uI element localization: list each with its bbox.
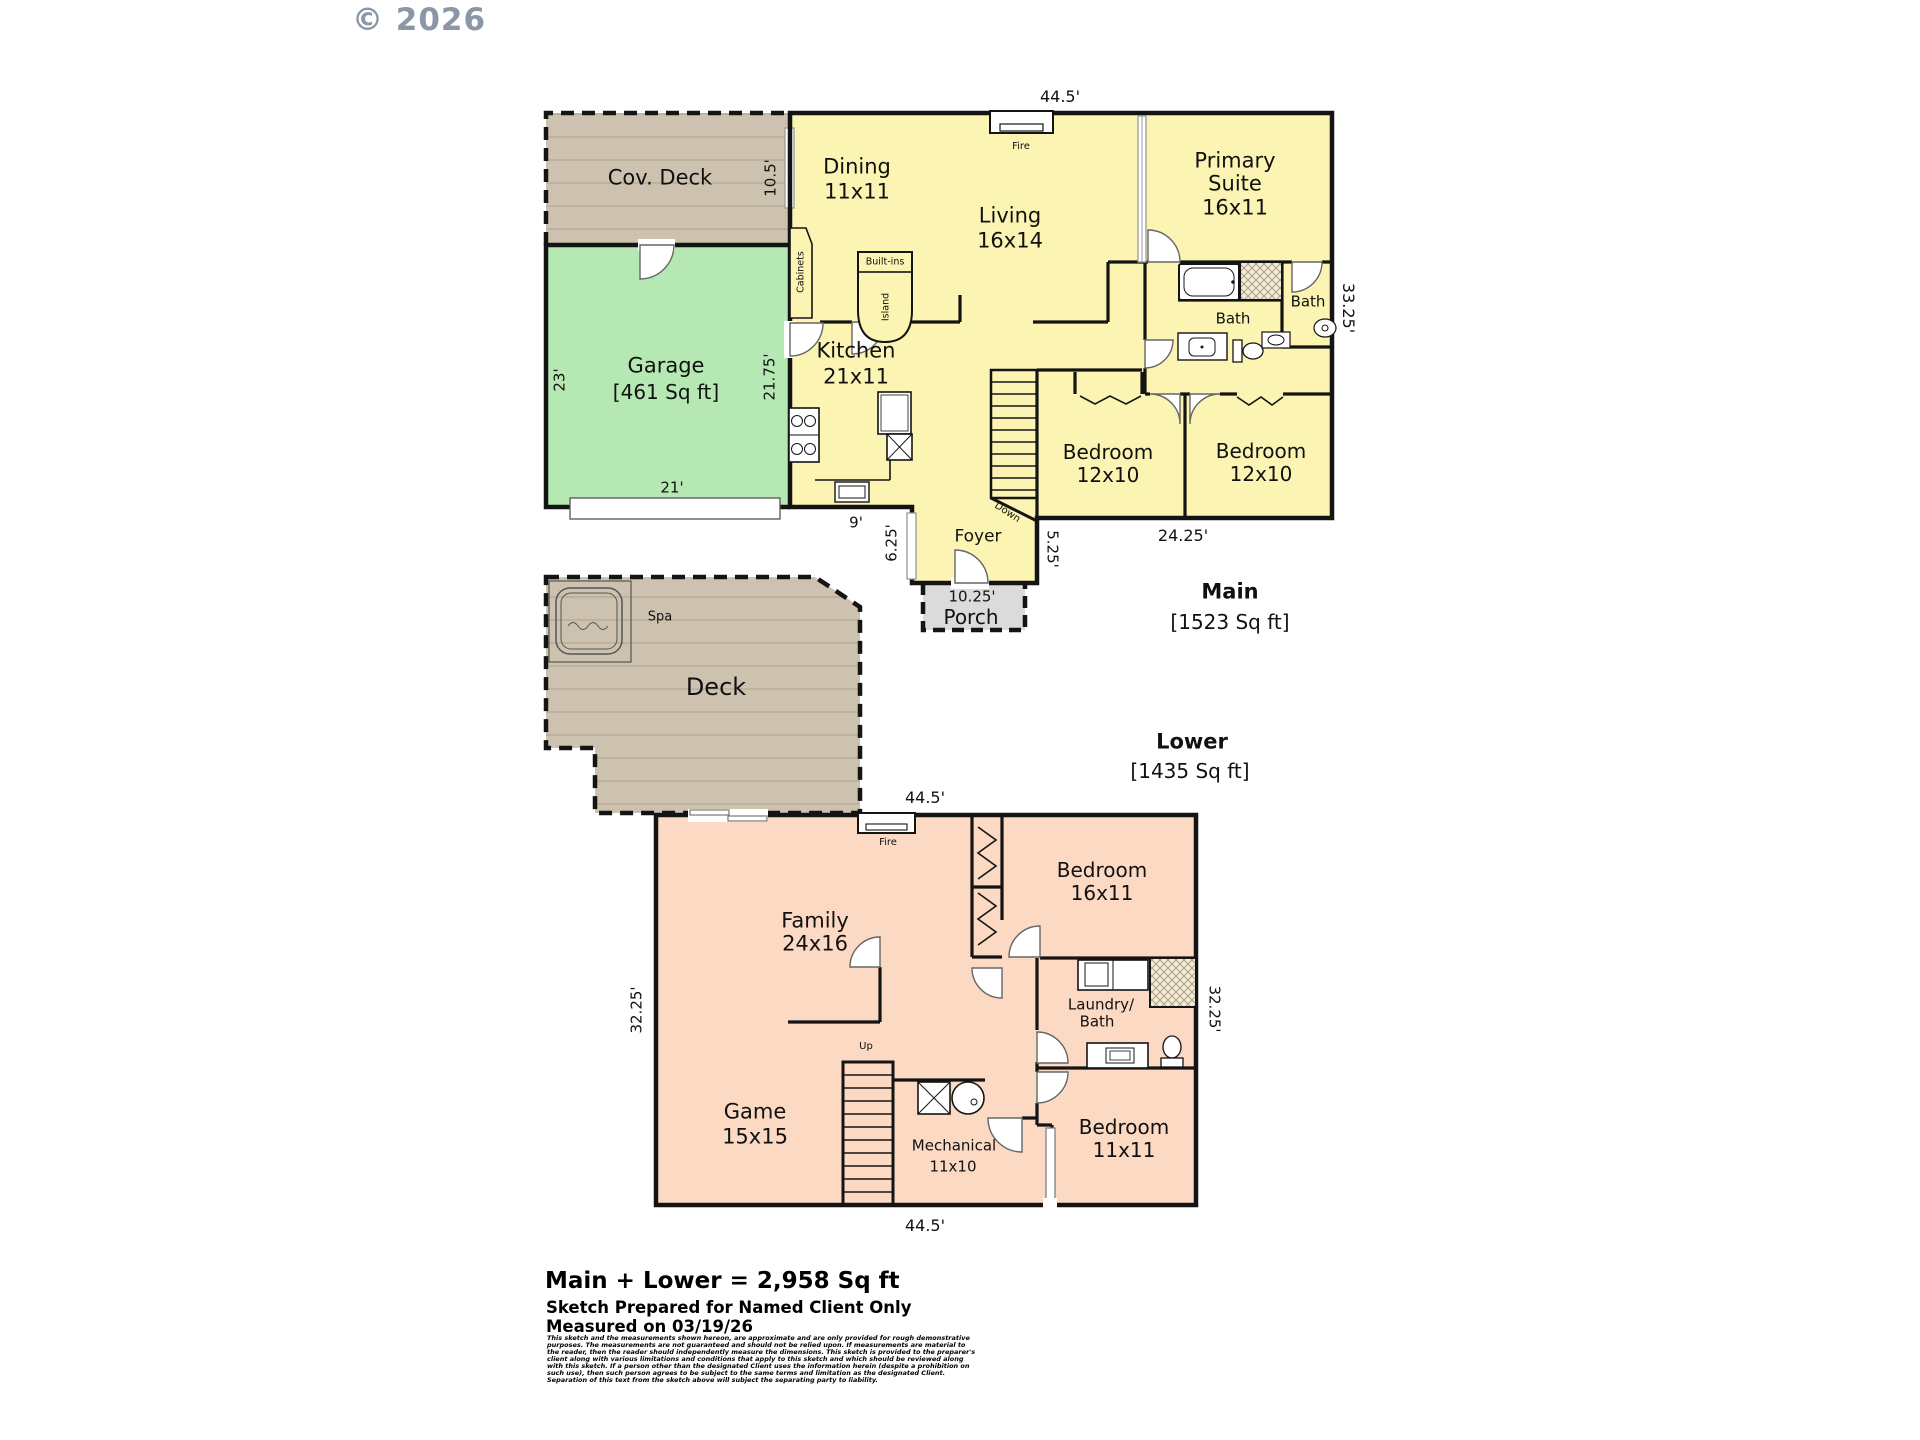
sliding-door-icon (688, 809, 768, 822)
dim-bedrooms-width: 24.25' (1158, 528, 1208, 544)
hvac-icon (918, 1082, 950, 1114)
dim-garage-door: 21' (660, 481, 683, 496)
room-label-primary-suite-2: Suite (1208, 174, 1262, 195)
room-label-dining: Dining (823, 157, 891, 178)
pedestal-sink-icon (1314, 319, 1336, 337)
room-dim-game: 15x15 (722, 1127, 788, 1148)
room-dim-bedroom-upper: 16x11 (1071, 883, 1134, 903)
washer-dryer-icon (1078, 960, 1148, 990)
room-label-living: Living (979, 206, 1041, 227)
main-level-sqft: [1523 Sq ft] (1170, 612, 1289, 632)
sink-vanity-icon (1087, 1043, 1148, 1068)
dim-house-left: 21.75' (763, 353, 778, 400)
range-icon (789, 408, 819, 462)
room-label-cov-deck: Cov. Deck (608, 168, 712, 189)
room-label-garage: Garage (628, 356, 705, 377)
shower-icon (1240, 262, 1282, 300)
room-label-bedroom-right: Bedroom (1216, 441, 1306, 461)
dim-main-height: 33.25' (1340, 283, 1356, 333)
copyright-watermark: © 2026 (352, 2, 486, 38)
pantry-icon (887, 434, 912, 460)
dim-lower-height-right: 32.25' (1207, 985, 1222, 1032)
garage-sqft: [461 Sq ft] (613, 382, 719, 402)
room-dim-bedroom-lower: 11x11 (1093, 1140, 1156, 1160)
fireplace-label: Fire (879, 838, 897, 848)
stairs-up-label: Up (859, 1042, 873, 1052)
room-dim-primary-suite: 16x11 (1202, 198, 1268, 219)
fireplace-icon (858, 813, 915, 833)
room-label-bath-hall: Bath (1216, 312, 1251, 327)
room-label-bath-primary: Bath (1291, 295, 1326, 310)
island-label: Island (881, 293, 891, 321)
room-label-laundry-2: Bath (1080, 1015, 1115, 1030)
fireplace-icon (990, 111, 1053, 133)
room-dim-mechanical: 11x10 (929, 1160, 976, 1175)
built-ins-label: Built-ins (866, 257, 905, 267)
room-dim-family: 24x16 (782, 934, 848, 955)
room-label-primary-suite: Primary (1194, 151, 1275, 172)
toilet-icon (1161, 1036, 1183, 1067)
deck-label: Deck (686, 675, 746, 699)
sink-icon (1262, 332, 1290, 348)
prepared-for-text: Sketch Prepared for Named Client Only (546, 1298, 911, 1317)
garage-door-icon (570, 498, 780, 519)
dim-cov-deck: 10.5' (764, 159, 779, 197)
room-label-bedroom-lower: Bedroom (1079, 1117, 1169, 1137)
room-label-laundry: Laundry/ (1068, 998, 1134, 1013)
bathtub-icon (1179, 264, 1239, 300)
dim-kitchen-bottom: 9' (849, 516, 863, 531)
disclaimer-text: This sketch and the measurements shown h… (547, 1335, 979, 1384)
room-dim-bedroom-right: 12x10 (1230, 464, 1293, 484)
dim-lower-width-top: 44.5' (905, 790, 945, 806)
dim-lower-width-bottom: 44.5' (905, 1218, 945, 1234)
dim-foyer-right: 5.25' (1045, 530, 1060, 568)
room-label-game: Game (724, 1102, 787, 1123)
fridge-icon (878, 392, 911, 434)
lower-level-sqft: [1435 Sq ft] (1130, 761, 1249, 781)
room-dim-dining: 11x11 (824, 182, 890, 203)
room-dim-kitchen: 21x11 (823, 367, 889, 388)
room-label-mechanical: Mechanical (912, 1139, 996, 1154)
kitchen-sink-icon (835, 482, 869, 502)
room-dim-living: 16x14 (977, 231, 1043, 252)
cabinets-label: Cabinets (796, 251, 806, 293)
total-sqft-text: Main + Lower = 2,958 Sq ft (545, 1268, 900, 1294)
pocket-door-icon (1046, 1128, 1055, 1200)
room-label-family: Family (781, 911, 849, 932)
spa-label: Spa (648, 611, 672, 624)
main-level-title: Main (1201, 582, 1258, 603)
dim-porch: 10.25' (948, 590, 995, 605)
dim-main-width: 44.5' (1040, 89, 1080, 105)
shower-icon (1150, 958, 1196, 1007)
floor-plan-sketch: © 2026 Cov. Deck 10.5' Garage [461 Sq ft… (0, 0, 1920, 1440)
sink-vanity-icon (1178, 333, 1227, 360)
lower-level-title: Lower (1156, 732, 1228, 753)
room-label-kitchen: Kitchen (817, 341, 896, 362)
room-label-bedroom-upper: Bedroom (1057, 860, 1147, 880)
floor-plan-graphics (0, 0, 1920, 1440)
fireplace-label: Fire (1012, 142, 1030, 152)
room-label-bedroom-left: Bedroom (1063, 442, 1153, 462)
room-label-porch: Porch (943, 607, 998, 627)
room-label-foyer: Foyer (954, 529, 1001, 546)
dim-foyer-left: 6.25' (885, 524, 900, 562)
room-dim-bedroom-left: 12x10 (1077, 465, 1140, 485)
water-heater-icon (952, 1082, 984, 1114)
dim-lower-height-left: 32.25' (630, 986, 645, 1033)
window-icon (907, 513, 916, 579)
dim-garage-left: 23' (553, 368, 568, 391)
